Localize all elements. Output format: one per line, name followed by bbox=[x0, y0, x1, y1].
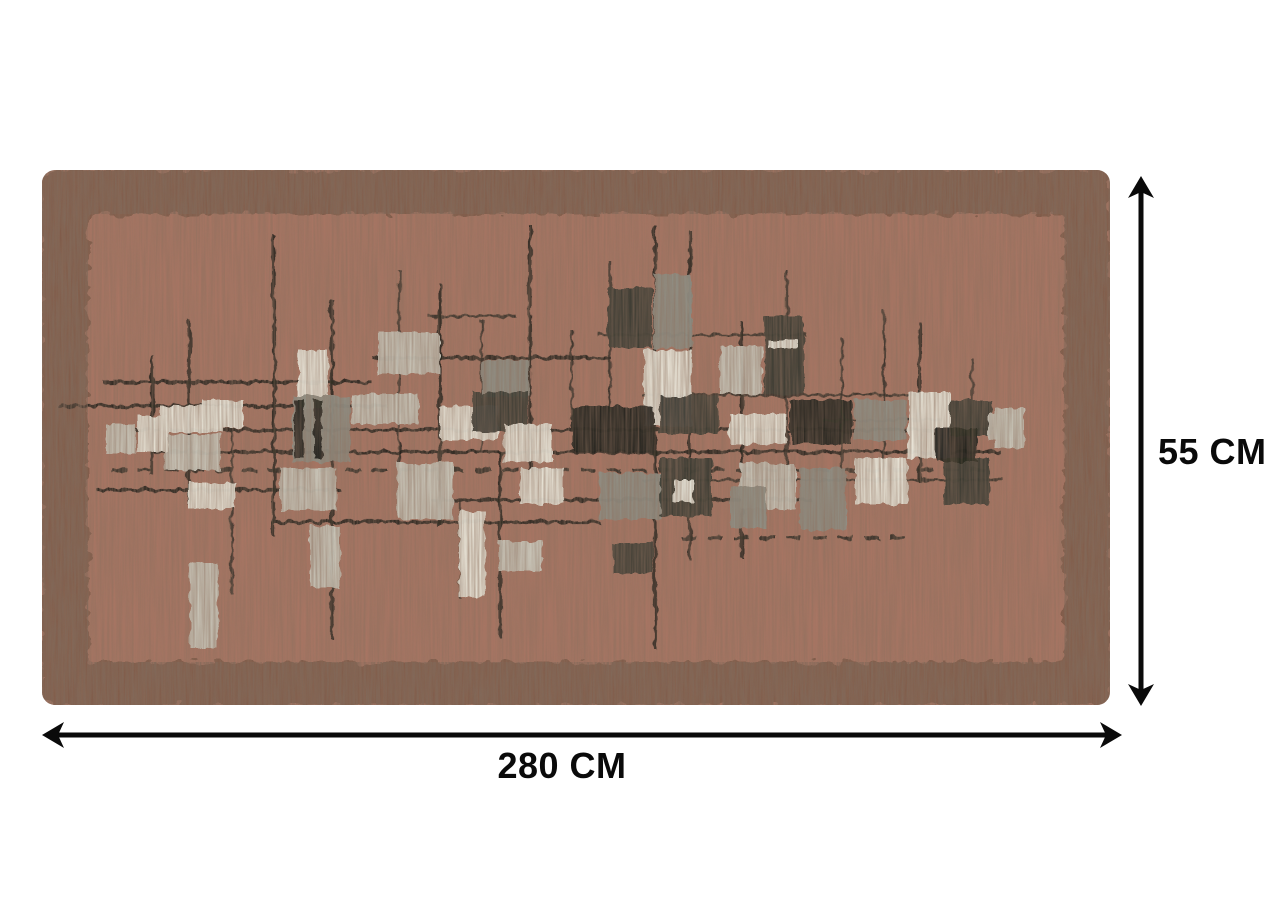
width-dimension-label: 280 CM bbox=[432, 746, 692, 786]
height-dimension-arrow bbox=[1122, 170, 1162, 712]
product-diagram: 280 CM 55 CM bbox=[0, 0, 1280, 920]
double-headed-arrow-vertical-icon bbox=[1122, 170, 1162, 712]
rug-illustration bbox=[42, 170, 1110, 705]
rug-border-texture bbox=[42, 170, 1110, 705]
height-dimension-label: 55 CM bbox=[1158, 432, 1267, 472]
rug-image bbox=[42, 170, 1110, 705]
